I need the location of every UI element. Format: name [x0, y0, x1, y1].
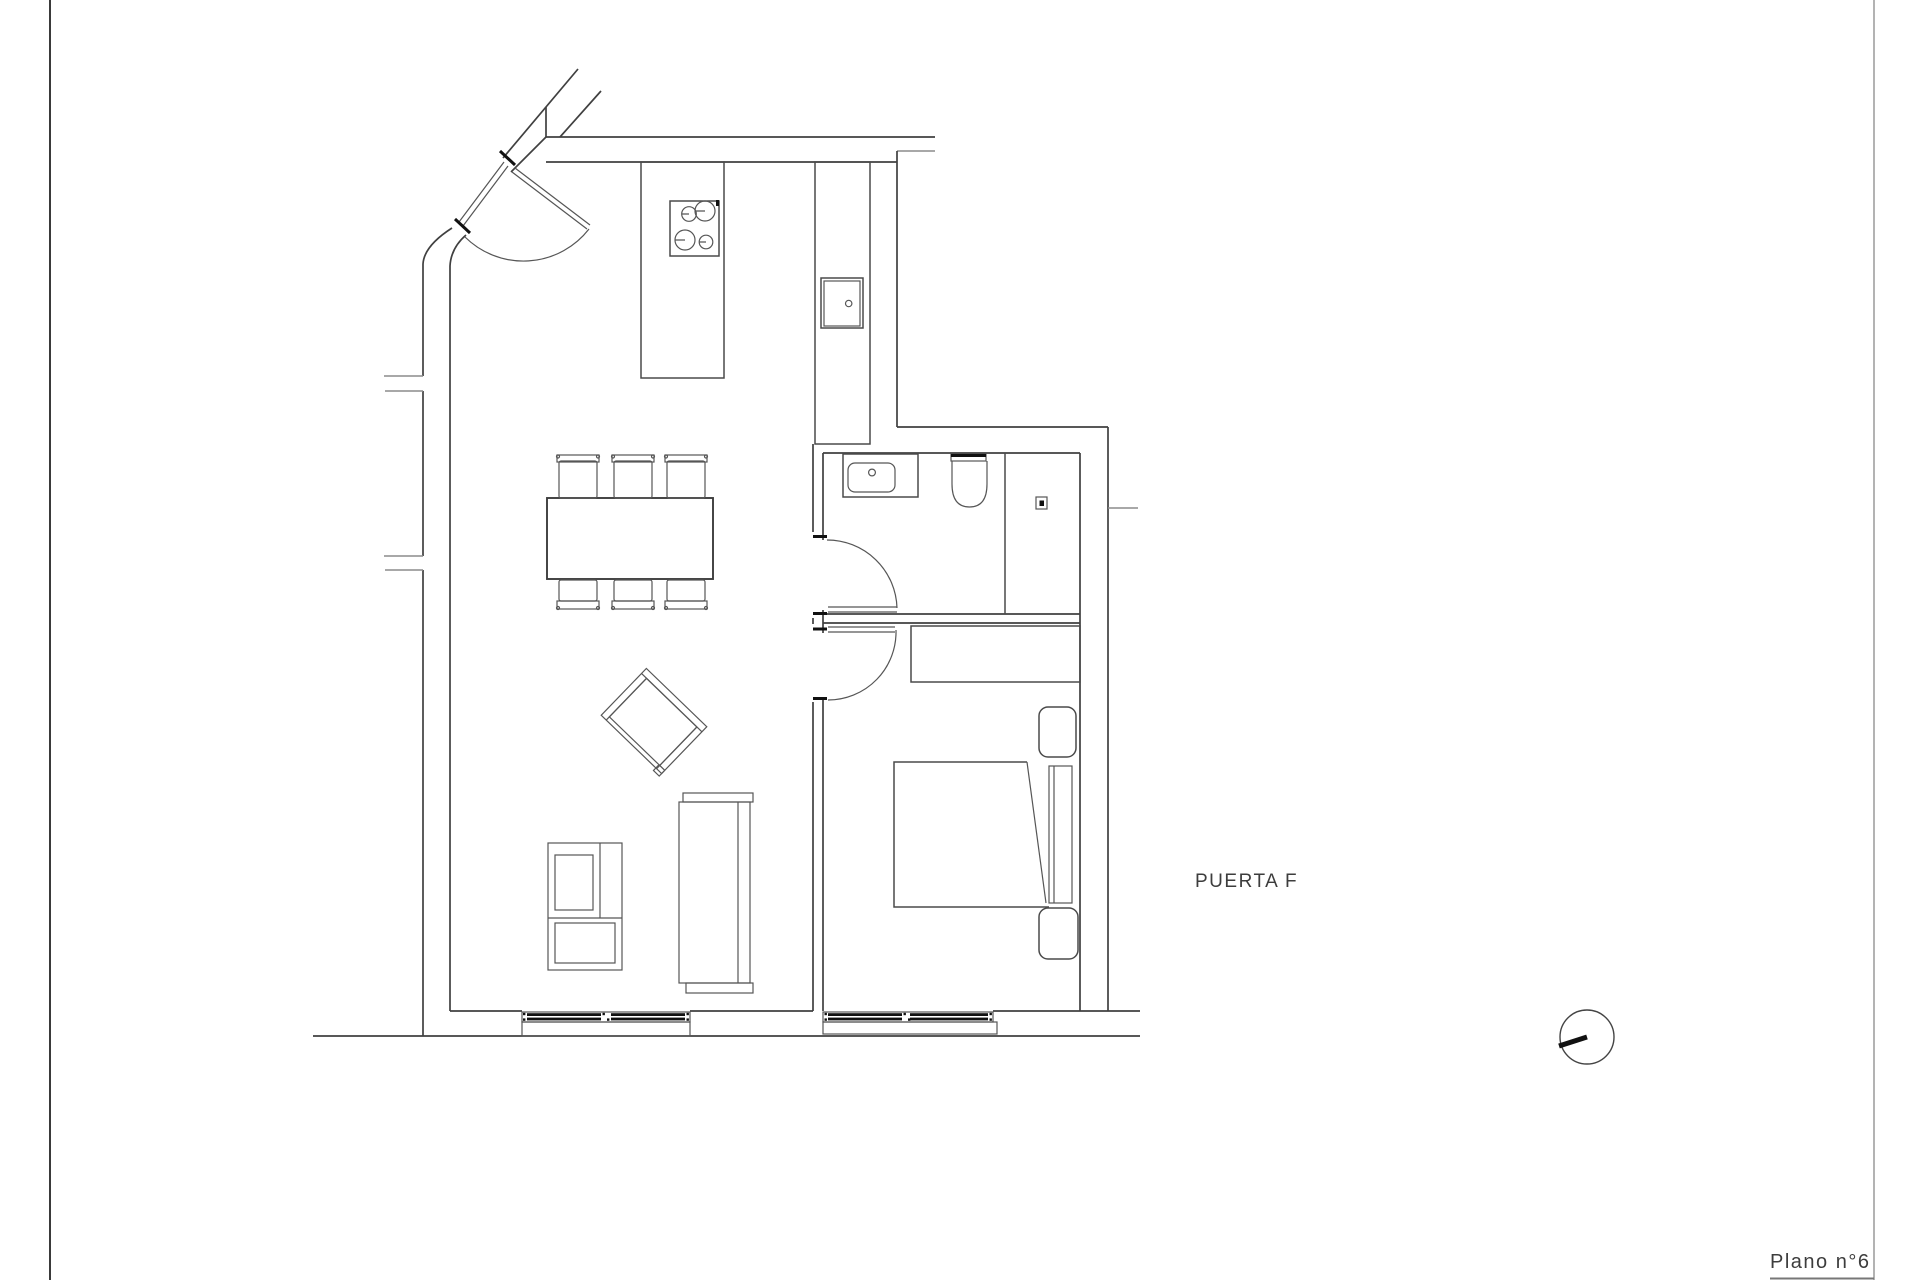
tv-cabinet [548, 843, 622, 970]
bedroom-door-leaf [828, 627, 895, 632]
bedroom-door-swing-arc [828, 630, 896, 700]
orientation-symbol [1559, 1010, 1614, 1064]
floor-plan-canvas: PUERTA F Plano n°6 [0, 0, 1920, 1280]
sofa [679, 793, 753, 993]
interior-partition-wall [813, 444, 823, 1011]
armchair [599, 668, 707, 776]
bathroom-sink-icon [843, 454, 918, 497]
bathroom-door-swing-arc [827, 540, 897, 608]
chair [557, 580, 600, 610]
kitchen-sink-icon [821, 278, 863, 328]
bathroom [823, 453, 1080, 1011]
dining-chairs [557, 455, 708, 610]
stove-icon [670, 200, 719, 256]
chair [612, 455, 655, 498]
window-sill [522, 1022, 690, 1036]
bedroom-door [813, 627, 896, 700]
nightstand-top [1039, 707, 1076, 757]
entrance-door-swing-arc [465, 229, 589, 261]
chair [665, 580, 708, 610]
bathroom-door-leaf [828, 607, 897, 612]
exterior-walls [313, 69, 1140, 1036]
kitchen-sink-counter [815, 162, 870, 444]
entrance-door-leaf [512, 168, 590, 229]
door-label: PUERTA F [1195, 871, 1298, 892]
dining-table [547, 498, 713, 579]
wardrobe [911, 626, 1080, 682]
bed [894, 762, 1072, 907]
bathroom-door [813, 537, 897, 614]
shower-drain-icon [1036, 497, 1047, 509]
entrance-door-jamb-bottom [455, 219, 470, 233]
drawing-sheet: PUERTA F Plano n°6 [0, 0, 1920, 1280]
chair [557, 455, 600, 498]
entrance-door [455, 151, 590, 261]
chair [612, 580, 655, 610]
kitchen-counter [641, 162, 724, 378]
nightstand-bottom [1039, 908, 1078, 959]
window-sill [823, 1022, 997, 1034]
bed-sheet-fold [1027, 762, 1046, 903]
plan-number-label: Plano n°6 [1770, 1251, 1870, 1273]
window-bedroom [823, 1012, 997, 1034]
toilet-icon [951, 454, 987, 507]
window-living-room [522, 1012, 690, 1036]
chair [665, 455, 708, 498]
